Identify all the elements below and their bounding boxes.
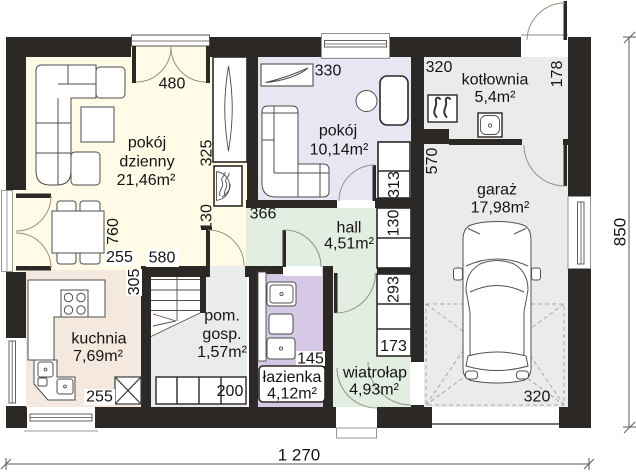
svg-text:850: 850 [611, 218, 630, 246]
svg-text:325: 325 [199, 140, 216, 167]
svg-text:pokój: pokój [319, 123, 357, 140]
svg-text:480: 480 [159, 76, 186, 93]
svg-text:320: 320 [524, 389, 551, 406]
svg-text:dzienny: dzienny [119, 154, 174, 171]
svg-text:1 270: 1 270 [278, 446, 321, 465]
svg-text:320: 320 [426, 59, 453, 76]
svg-text:570: 570 [424, 148, 441, 175]
svg-text:173: 173 [380, 338, 407, 355]
svg-text:200: 200 [217, 383, 244, 400]
svg-text:760: 760 [105, 218, 122, 245]
svg-text:305: 305 [126, 269, 143, 296]
svg-text:4,12m²: 4,12m² [267, 386, 317, 403]
svg-text:7,69m²: 7,69m² [73, 348, 123, 365]
svg-text:10,14m²: 10,14m² [310, 142, 369, 159]
svg-text:gosp.: gosp. [202, 326, 241, 343]
svg-text:21,46m²: 21,46m² [117, 172, 176, 189]
svg-text:255: 255 [106, 249, 133, 266]
svg-text:255: 255 [86, 389, 113, 406]
svg-text:kotłownia: kotłownia [462, 72, 529, 89]
svg-text:330: 330 [315, 63, 342, 80]
svg-text:4,51m²: 4,51m² [324, 236, 374, 253]
svg-text:313: 313 [386, 171, 403, 198]
svg-text:hall: hall [337, 220, 362, 237]
svg-text:178: 178 [549, 61, 566, 88]
svg-text:wiatrołap: wiatrołap [342, 365, 407, 382]
svg-text:5,4m²: 5,4m² [475, 89, 517, 106]
svg-text:garaż: garaż [477, 182, 517, 199]
svg-text:130: 130 [386, 210, 403, 237]
svg-text:pokój: pokój [128, 135, 166, 152]
svg-text:pom.: pom. [204, 308, 240, 325]
svg-text:580: 580 [149, 250, 176, 267]
svg-text:kuchnia: kuchnia [71, 331, 126, 348]
svg-text:1,57m²: 1,57m² [197, 344, 247, 361]
svg-text:17,98m²: 17,98m² [471, 200, 530, 217]
svg-text:366: 366 [250, 206, 277, 223]
svg-text:4,93m²: 4,93m² [349, 382, 399, 399]
svg-text:łazienka: łazienka [263, 369, 322, 386]
svg-text:293: 293 [386, 276, 403, 303]
svg-text:130: 130 [199, 204, 216, 231]
svg-text:145: 145 [297, 351, 324, 368]
